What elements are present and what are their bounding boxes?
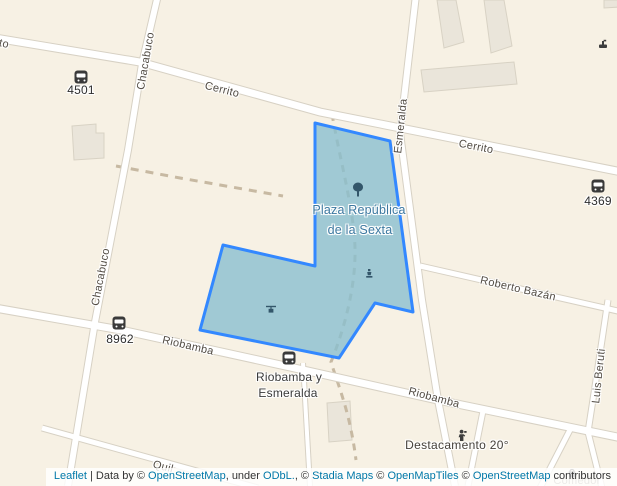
building — [437, 0, 464, 48]
stadia-maps-link[interactable]: Stadia Maps — [312, 470, 373, 482]
building — [484, 0, 512, 53]
plaza-polygon[interactable] — [200, 123, 413, 358]
footpath-northwest — [116, 166, 283, 196]
attribution-text: contributors — [550, 470, 611, 482]
attribution-text: , © — [295, 470, 312, 482]
attribution-text: | Data by © — [87, 470, 148, 482]
leaflet-link[interactable]: Leaflet — [54, 470, 87, 482]
map-vector-layer — [0, 0, 617, 486]
attribution-text: , under — [226, 470, 263, 482]
building — [604, 0, 617, 8]
openstreetmap-link[interactable]: OpenStreetMap — [148, 470, 226, 482]
building — [421, 62, 517, 92]
openstreetmap-link[interactable]: OpenStreetMap — [473, 470, 551, 482]
attribution-text: © — [373, 470, 387, 482]
attribution-text: © — [459, 470, 473, 482]
street-casings — [0, 0, 617, 486]
odbl-link[interactable]: ODbL. — [263, 470, 295, 482]
openmaptiles-link[interactable]: OpenMapTiles — [387, 470, 458, 482]
attribution-bar: Leaflet | Data by © OpenStreetMap, under… — [46, 468, 617, 486]
map-canvas[interactable]: to Cerrito Cerrito Chacabuco Chacabuco E… — [0, 0, 617, 486]
street-roberto-bazan — [420, 266, 617, 312]
building — [72, 124, 104, 160]
